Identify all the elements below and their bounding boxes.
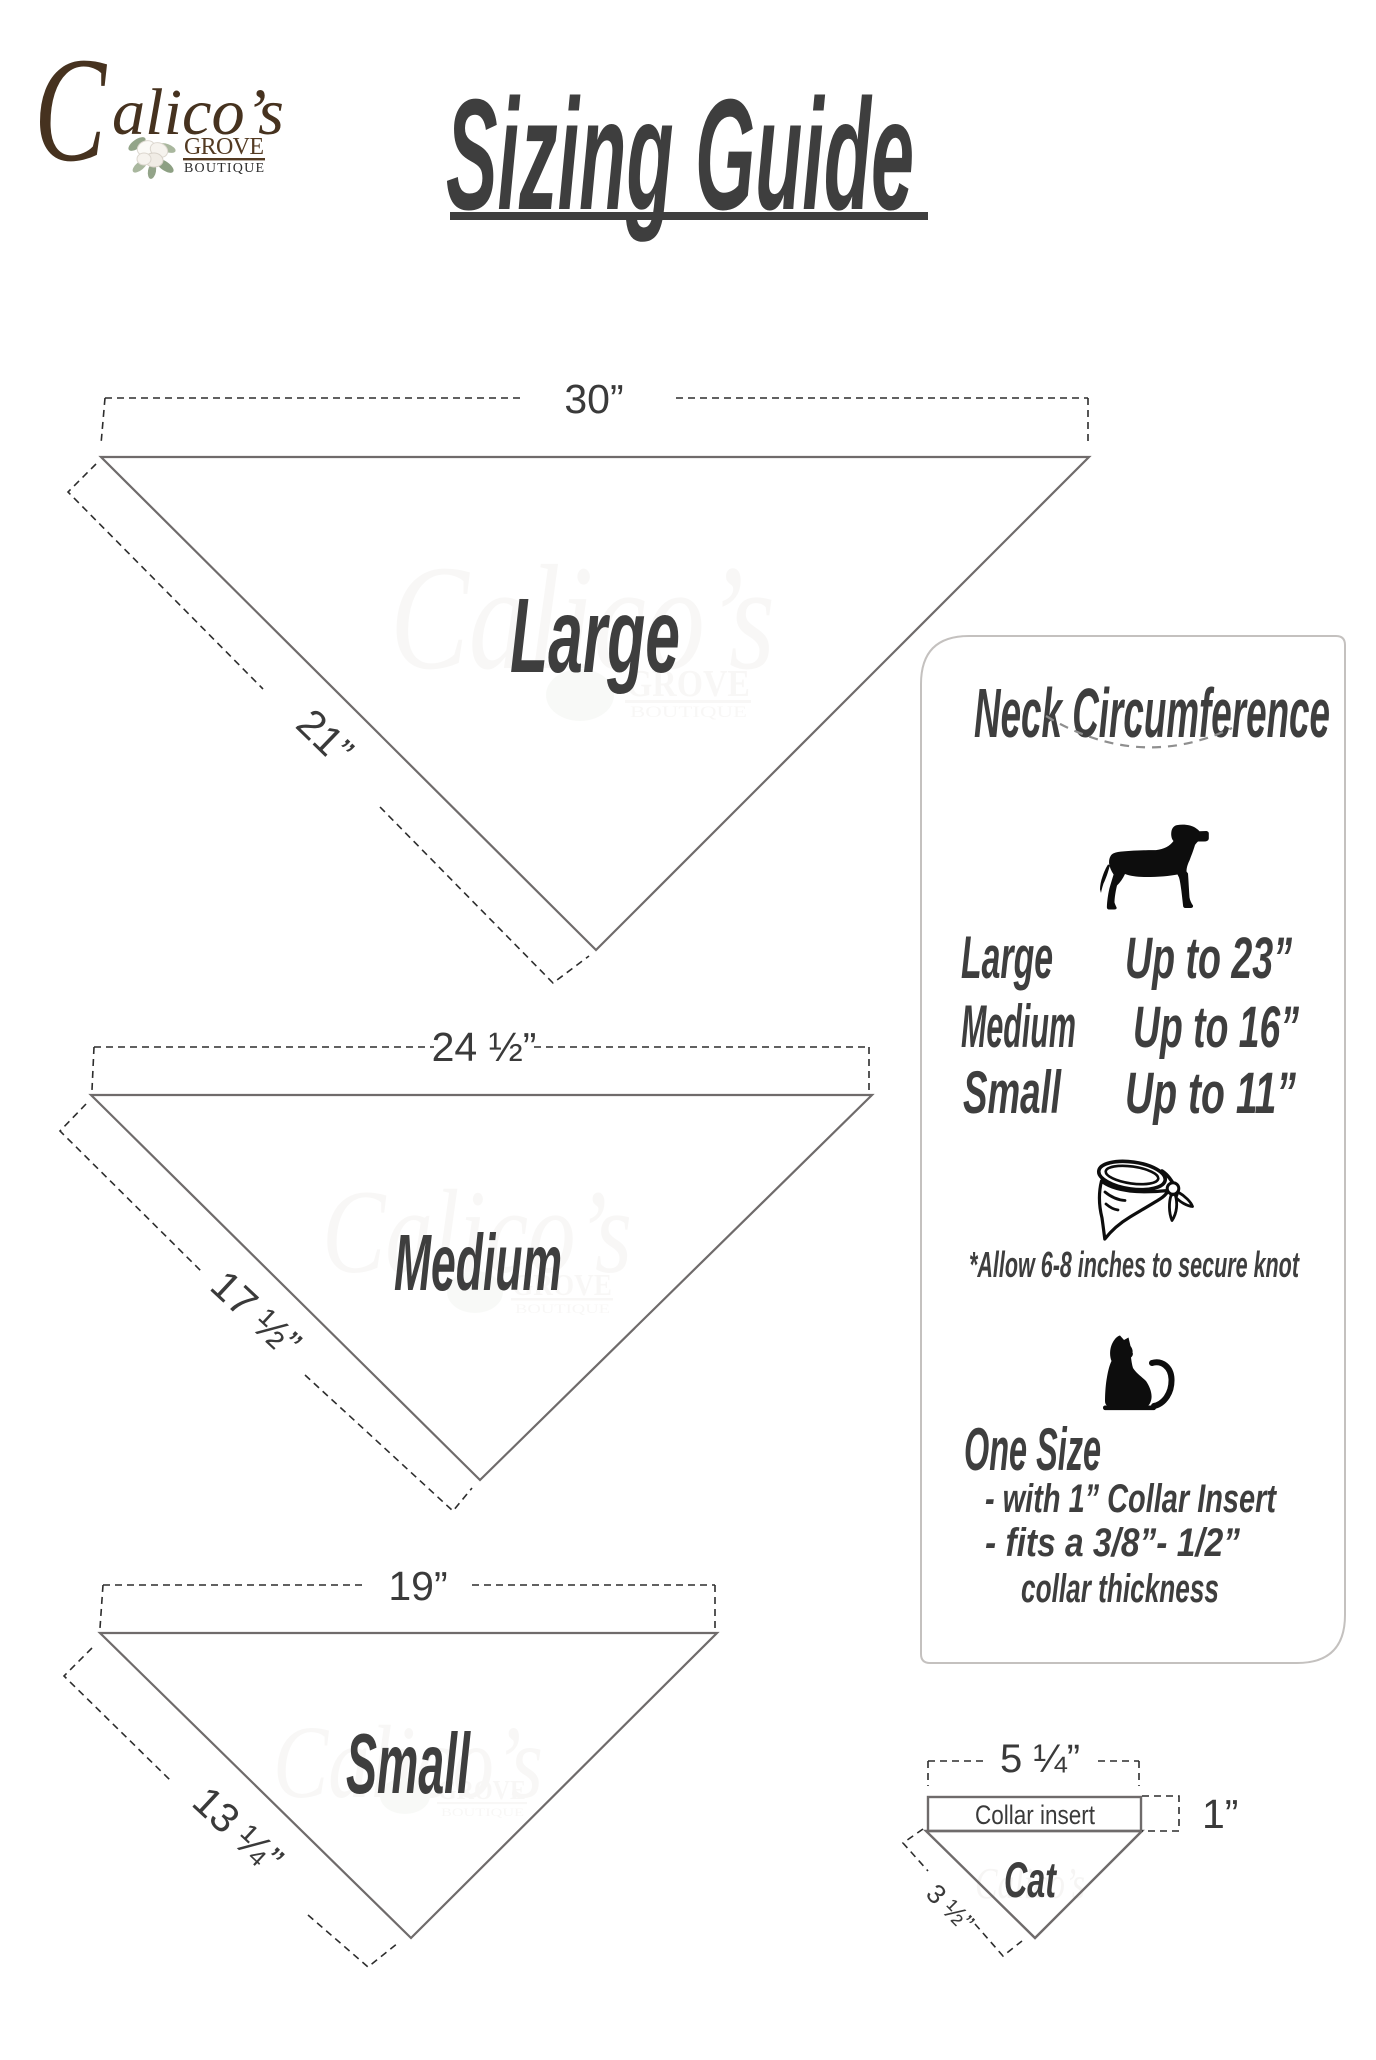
- svg-text:Up to 23”: Up to 23”: [1125, 926, 1292, 991]
- svg-text:Collar insert: Collar insert: [975, 1800, 1095, 1830]
- svg-text:BOUTIQUE: BOUTIQUE: [184, 161, 264, 176]
- svg-text:- fits a 3/8”- 1/2”: - fits a 3/8”- 1/2”: [985, 1521, 1240, 1565]
- svg-text:24 ½”: 24 ½”: [432, 1024, 537, 1070]
- svg-text:5 ¼”: 5 ¼”: [1000, 1737, 1080, 1781]
- svg-text:C: C: [34, 28, 108, 193]
- svg-text:*Allow 6-8 inches to secure kn: *Allow 6-8 inches to secure knot: [969, 1244, 1300, 1285]
- svg-text:BOUTIQUE: BOUTIQUE: [630, 704, 747, 721]
- svg-text:30”: 30”: [564, 376, 623, 422]
- svg-text:Neck Circumference: Neck Circumference: [974, 674, 1330, 752]
- svg-text:Cat: Cat: [1004, 1852, 1058, 1908]
- svg-text:1”: 1”: [1202, 1791, 1238, 1837]
- svg-text:Medium: Medium: [961, 993, 1076, 1060]
- svg-text:Up to 11”: Up to 11”: [1125, 1061, 1296, 1126]
- svg-text:GROVE: GROVE: [184, 134, 264, 160]
- svg-text:Medium: Medium: [394, 1218, 562, 1307]
- svg-text:collar thickness: collar thickness: [1021, 1567, 1219, 1611]
- svg-text:- with 1” Collar Insert: - with 1” Collar Insert: [985, 1477, 1277, 1521]
- svg-text:Up to 16”: Up to 16”: [1133, 995, 1299, 1060]
- svg-text:One Size: One Size: [964, 1416, 1101, 1483]
- svg-text:Large: Large: [961, 924, 1053, 991]
- svg-text:Small: Small: [963, 1059, 1062, 1126]
- svg-text:19”: 19”: [388, 1563, 447, 1609]
- svg-text:Small: Small: [346, 1717, 471, 1812]
- svg-text:Large: Large: [510, 577, 680, 695]
